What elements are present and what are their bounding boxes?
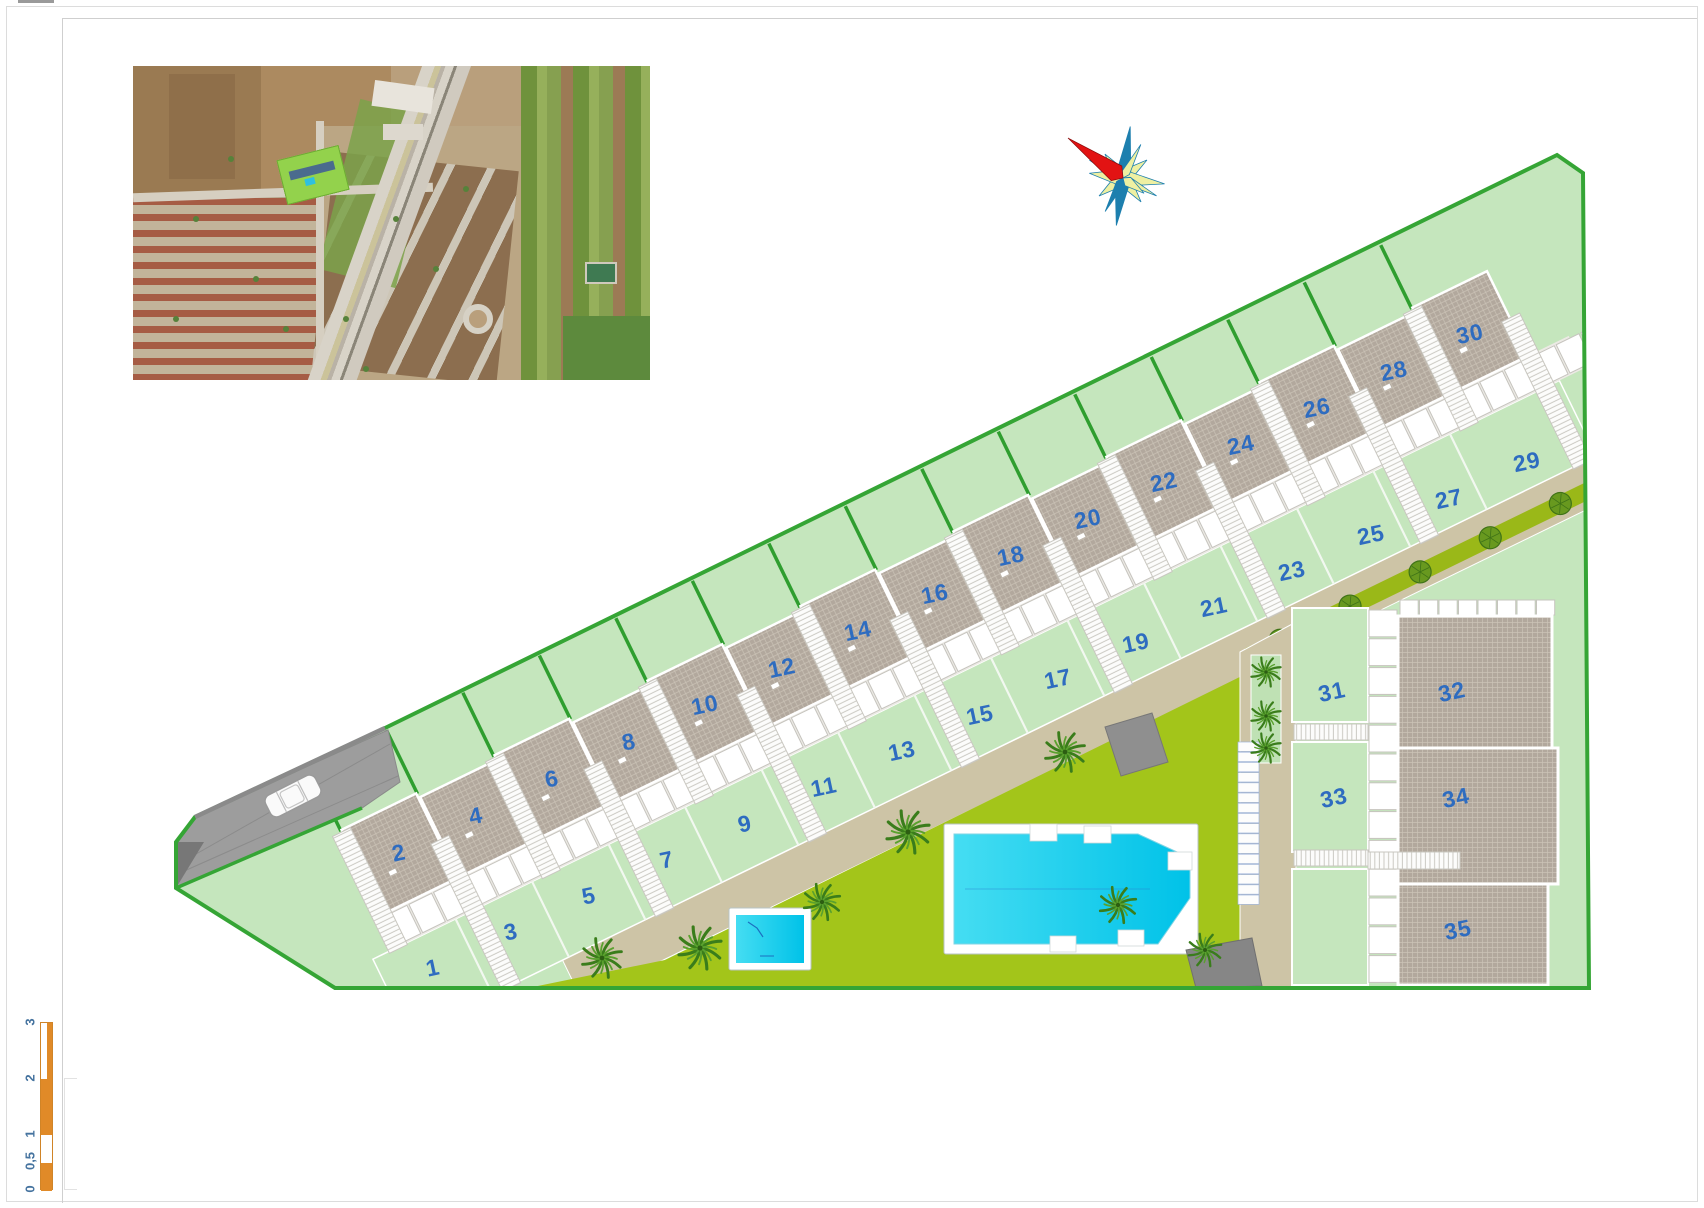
aerial-photo-region — [133, 198, 319, 380]
scale-bar-segment — [41, 1163, 52, 1191]
aerial-photo-region — [253, 276, 259, 282]
aerial-photo-region — [463, 186, 469, 192]
aerial-photo-region — [363, 366, 369, 372]
aerial-photo-region — [585, 262, 617, 284]
aerial-photo-region — [283, 326, 289, 332]
aerial-photo-region — [463, 304, 493, 334]
location-aerial-photo — [133, 66, 650, 380]
aerial-photo-region — [393, 216, 399, 222]
aerial-photo-region — [228, 156, 234, 162]
aerial-photo-region — [343, 316, 349, 322]
aerial-photo-region — [383, 124, 423, 140]
scale-bar — [40, 1022, 53, 1190]
scale-bar-segment — [41, 1135, 52, 1163]
aerial-photo-region — [193, 216, 199, 222]
plan-sheet: 1234567891011121314151617181920212223242… — [0, 0, 1704, 1208]
scale-bar-segment — [47, 1023, 52, 1079]
scale-bar-segment — [41, 1079, 52, 1135]
aerial-photo-region — [563, 316, 650, 380]
compass-rose-icon — [1048, 103, 1198, 253]
aerial-photo-region — [169, 74, 235, 179]
sheet-top-mark — [18, 0, 54, 3]
scale-bracket — [64, 1078, 79, 1190]
aerial-photo-region — [433, 266, 439, 272]
aerial-photo-region — [173, 316, 179, 322]
